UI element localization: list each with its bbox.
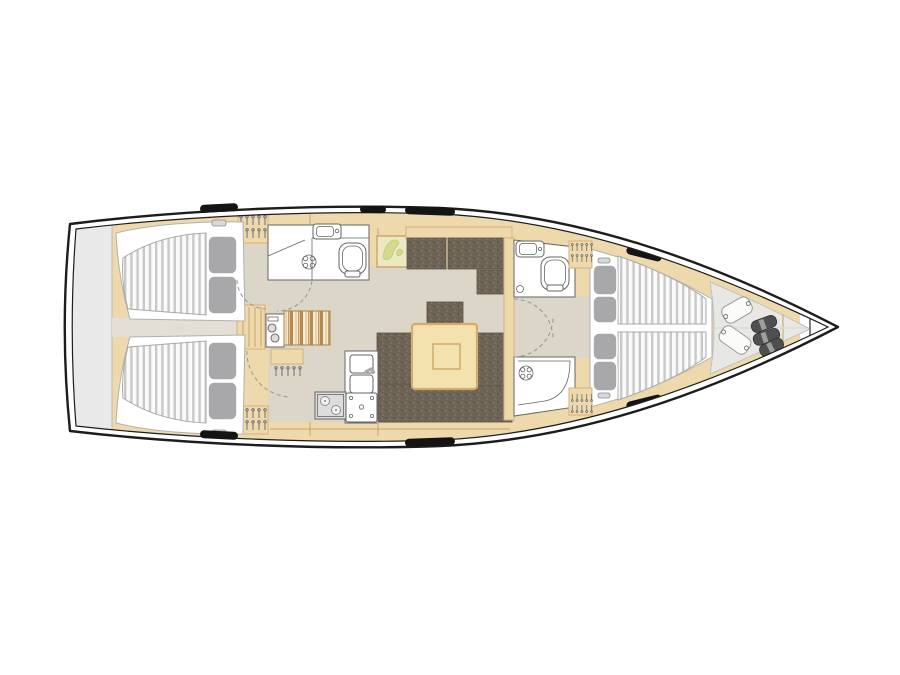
aft-cabin-port (116, 220, 245, 321)
aft-cabin-starboard (116, 335, 245, 436)
stove (315, 392, 346, 419)
saloon-stool (427, 302, 463, 325)
toilet (541, 257, 569, 291)
dining-table (412, 324, 477, 389)
side-sofa-cushion (477, 270, 508, 294)
deck-track-icon (360, 206, 386, 213)
aft-head (268, 224, 369, 280)
side-sofa-cushion (448, 238, 505, 269)
nav-desk (271, 349, 303, 364)
forward-corridor-floor (506, 296, 594, 358)
oven (346, 393, 377, 422)
shower-stall (514, 357, 575, 416)
framed-chart (377, 236, 408, 267)
nav-seat (284, 311, 330, 345)
sink (313, 224, 341, 239)
sink (350, 375, 373, 393)
yacht-layout-canvas (0, 0, 900, 675)
yacht-layout-plan (0, 0, 900, 675)
sink (516, 241, 544, 257)
head-bulkhead (504, 238, 514, 420)
side-sofa-cushion (407, 238, 446, 269)
toilet (339, 243, 366, 277)
